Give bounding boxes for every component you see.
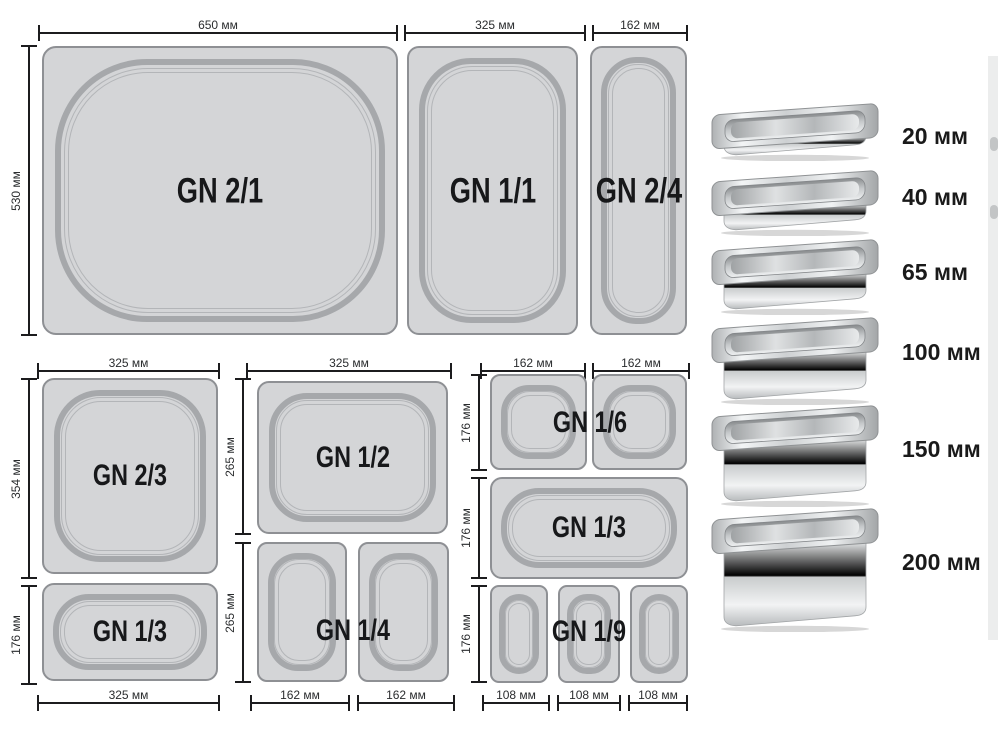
pan-photo-150mm [708, 403, 884, 507]
gn-pan-2-4: GN 2/4 [590, 46, 687, 335]
dim-label: 162 мм [280, 689, 320, 701]
depth-label-150mm: 150 мм [902, 436, 981, 464]
gn-label-1-4: GN 1/4 [316, 616, 390, 646]
dim-bm-bottom-162-b: 162 мм [357, 702, 455, 704]
dim-bm-265-a: 265 мм [242, 378, 244, 535]
pan-inner-line [508, 603, 530, 665]
dim-label: 108 мм [569, 689, 609, 701]
right-edge-mark [990, 205, 998, 219]
dim-label: 162 мм [620, 19, 660, 31]
gn-pan-1-2: GN 1/2 [257, 381, 448, 534]
dim-label: 108 мм [496, 689, 536, 701]
dim-label: 325 мм [475, 19, 515, 31]
gn-label-1-9: GN 1/9 [552, 617, 626, 647]
dim-label: 325 мм [109, 357, 149, 369]
dim-label: 176 мм [460, 508, 472, 548]
depth-label-20mm: 20 мм [902, 123, 968, 151]
dim-label: 265 мм [224, 593, 236, 633]
dim-label: 354 мм [10, 459, 22, 499]
dim-label: 108 мм [638, 689, 678, 701]
gn-pan-1-3-right: GN 1/3 [490, 477, 688, 579]
pan-photo-65mm [708, 237, 884, 315]
gn-pan-1-4-a [257, 542, 347, 682]
dim-label: 325 мм [109, 689, 149, 701]
pan-photo-20mm [708, 101, 884, 161]
right-edge-mark [990, 137, 998, 151]
dim-bm-top-325: 325 мм [246, 370, 452, 372]
dim-br-top-162-a: 162 мм [480, 370, 586, 372]
pan-inner-line [648, 603, 670, 665]
dim-bm-265-b: 265 мм [242, 542, 244, 683]
dim-label: 176 мм [460, 614, 472, 654]
dim-label: 650 мм [198, 19, 238, 31]
gn-label-2-3: GN 2/3 [93, 461, 167, 491]
pan-photo-200mm [708, 506, 884, 632]
depth-label-200mm: 200 мм [902, 549, 981, 577]
dim-label: 176 мм [10, 615, 22, 655]
dim-bl-top-325: 325 мм [37, 370, 220, 372]
dim-br-176-a: 176 мм [478, 374, 480, 471]
dim-br-bottom-108-a: 108 мм [482, 702, 550, 704]
gn-pan-1-4-b [358, 542, 449, 682]
dim-label: 162 мм [386, 689, 426, 701]
dim-br-bottom-108-b: 108 мм [557, 702, 621, 704]
gn-label-1-2: GN 1/2 [315, 443, 389, 473]
depth-label-65mm: 65 мм [902, 259, 968, 287]
gn-pan-2-1: GN 2/1 [42, 46, 398, 335]
dim-label: 162 мм [513, 357, 553, 369]
gn-label-1-3-left: GN 1/3 [93, 617, 167, 647]
gn-label-1-3-right: GN 1/3 [552, 513, 626, 543]
gn-label-2-4: GN 2/4 [595, 173, 681, 208]
dim-label: 162 мм [621, 357, 661, 369]
depth-label-40mm: 40 мм [902, 184, 968, 212]
dim-label: 265 мм [224, 437, 236, 477]
gn-pan-1-3-left: GN 1/3 [42, 583, 218, 681]
dim-bl-bottom-325: 325 мм [37, 702, 220, 704]
gn-label-1-1: GN 1/1 [449, 173, 535, 208]
gn-pan-2-3: GN 2/3 [42, 378, 218, 574]
dim-bm-bottom-162-a: 162 мм [250, 702, 350, 704]
gn-pan-1-1: GN 1/1 [407, 46, 578, 335]
dim-br-176-b: 176 мм [478, 477, 480, 579]
dim-br-176-c: 176 мм [478, 585, 480, 683]
gn-label-1-6: GN 1/6 [553, 408, 627, 438]
dim-br-bottom-108-c: 108 мм [628, 702, 688, 704]
depth-label-100mm: 100 мм [902, 339, 981, 367]
dim-height-530: 530 мм [28, 45, 30, 336]
dim-bl-354: 354 мм [28, 378, 30, 579]
dim-label: 325 мм [329, 357, 369, 369]
dim-width-650: 650 мм [38, 32, 398, 34]
gn-size-diagram: 650 мм 325 мм 162 мм 530 мм GN 2/1 GN 1/… [0, 0, 998, 734]
gn-label-2-1: GN 2/1 [177, 173, 263, 208]
dim-br-top-162-b: 162 мм [592, 370, 690, 372]
dim-label: 530 мм [10, 171, 22, 211]
dim-bl-176: 176 мм [28, 585, 30, 685]
pan-photo-40mm [708, 168, 884, 236]
pan-photo-100mm [708, 315, 884, 405]
gn-pan-1-9-c [630, 585, 688, 683]
dim-label: 176 мм [460, 403, 472, 443]
dim-width-162-top: 162 мм [592, 32, 688, 34]
dim-width-325-top: 325 мм [404, 32, 586, 34]
gn-pan-1-9-a [490, 585, 548, 683]
